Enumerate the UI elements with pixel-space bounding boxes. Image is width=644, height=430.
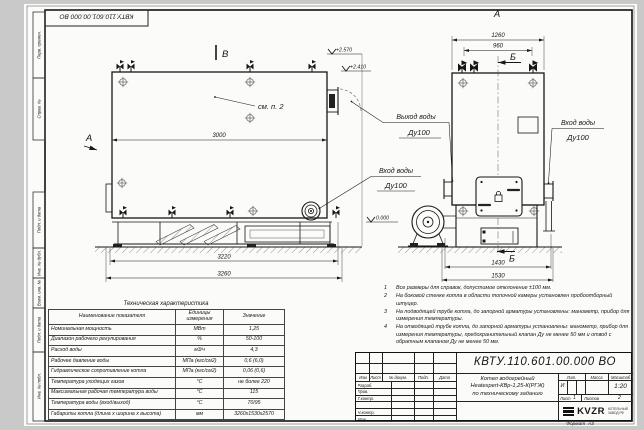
spec-table-title: Техническая характеристика: [48, 301, 284, 307]
kvzr-logo-subtext: КОТЕЛЬНЫЙ ЗАВОД РФ: [608, 408, 628, 416]
drawing-sheet: КВТУ.110.601.00.000 ВО Перв. примен. Спр…: [0, 0, 644, 430]
dim-3220: 3220: [217, 255, 231, 261]
spec-header-value: Значение: [224, 310, 285, 325]
list-label: Лист: [560, 396, 571, 401]
note-4: 4На отводящей трубе котла, до запорной а…: [384, 324, 634, 346]
row-prov: Пров.: [358, 389, 369, 394]
spec-row: Габариты котла (длина х ширина х высота)…: [49, 409, 285, 420]
section-b-bottom: Б: [509, 254, 515, 264]
outlet-pipe: [444, 179, 452, 199]
dim-1430: 1430: [491, 261, 505, 267]
front-view-label: А: [493, 9, 500, 20]
title-block: Изм Лист № докум. Подп. Дата Разраб. Про…: [355, 352, 632, 421]
connection-marks: [117, 77, 258, 216]
spec-row: Температура уходящих газов°Сне более 220: [49, 377, 285, 388]
dim-3260: 3260: [217, 272, 231, 278]
sidebar-vzam-inv: Взам. инв. №: [37, 280, 42, 306]
burner-door: [476, 177, 522, 216]
product-name: Котел водогрейный Heatexpert-КВр-1,25-К(…: [458, 376, 557, 398]
spec-header-name: Наименование показателя: [49, 310, 176, 325]
top-stamp: КВТУ.110.601.00.000 ВО: [45, 10, 148, 26]
front-view: А 1260 960 Б: [351, 9, 604, 282]
front-inlet-title: Вход воды: [561, 119, 596, 127]
sidebar-sprav-no: Справ. №: [37, 99, 42, 118]
format-value: А3: [588, 422, 594, 427]
spec-table: Техническая характеристика Наименование …: [48, 301, 284, 420]
dim-1530: 1530: [491, 274, 505, 280]
inlet-flange: [302, 202, 320, 220]
listov-label: Листов: [584, 396, 599, 401]
kvzr-logo-mark: [563, 407, 574, 416]
spec-row: Номинальная мощностьМВт1,25: [49, 325, 285, 336]
col-izm: Изм: [357, 375, 369, 380]
sidebar-labels: Перв. примен. Справ. № Подп. и дата Инв.…: [37, 31, 42, 399]
inlet-pipe: [543, 181, 555, 231]
dim-3000: 3000: [212, 133, 226, 139]
elev-2410: +2.410: [350, 65, 366, 71]
dim-1260: 1260: [491, 33, 505, 39]
inlet-title: Вход воды: [379, 167, 414, 175]
front-inlet-label: Вход воды Ду100: [548, 119, 604, 184]
spec-row: Диапазон рабочего регулирования%50-100: [49, 335, 285, 346]
col-list: Лист: [369, 375, 382, 380]
masshtab-label: Масштаб: [608, 375, 633, 380]
row-tkontr: Т.контр.: [358, 396, 375, 401]
spec-row: Температура воды (вход/выход)°С70/95: [49, 399, 285, 410]
sidebar-inv-dubl: Инв. № дубл.: [37, 250, 42, 276]
massa-label: Масса: [585, 375, 608, 380]
col-data: Дата: [433, 375, 456, 380]
format-label: Формат: [566, 422, 585, 427]
sidebar-perv-primen: Перв. примен.: [37, 31, 42, 59]
elev-2570: +2.570: [336, 48, 352, 54]
spec-header-unit: Единицы измерения: [176, 310, 224, 325]
lit-value: И: [558, 383, 567, 389]
section-b-top: Б: [510, 52, 516, 62]
spec-row: Максимальная рабочая температура воды°С1…: [49, 388, 285, 399]
kvzr-logo-text: KVZR: [577, 406, 605, 417]
dim-960: 960: [493, 44, 504, 50]
spec-header-row: Наименование показателя Единицы измерени…: [49, 310, 285, 325]
front-inlet-dn: Ду100: [566, 133, 589, 142]
format-strip: Формат А3: [540, 422, 620, 427]
base-frame: [112, 222, 336, 247]
section-b-label: В: [222, 49, 229, 60]
view-a-label: А: [85, 133, 92, 144]
row-nkontr: Н.контр.: [358, 410, 375, 415]
fan-blower: [408, 206, 456, 247]
col-podp: Подп.: [414, 375, 433, 380]
top-stamp-number: КВТУ.110.601.00.000 ВО: [60, 13, 134, 20]
note-3: 3На подводящей трубе котла, до запорной …: [384, 309, 634, 324]
company-logo: KVZR КОТЕЛЬНЫЙ ЗАВОД РФ: [558, 401, 633, 422]
row-razrab: Разраб.: [358, 383, 373, 388]
row-utv: Утв.: [358, 417, 367, 422]
side-view: 3000 В А см. п. 2 +2.570 +2.410: [84, 45, 421, 282]
spec-row: Расход водым3/ч4,3: [49, 346, 285, 357]
doc-number: КВТУ.110.601.00.000 ВО: [457, 356, 633, 368]
spec-row: Гидравлическое сопротивление котлаМПа (к…: [49, 367, 285, 378]
sidebar-podp-data-1: Подп. и дата: [37, 206, 42, 233]
notes-block: 1Все размеры для справок, допустимое отк…: [384, 285, 634, 347]
sidebar-podp-data-2: Подп. и дата: [37, 316, 42, 343]
valve-icons: [117, 60, 341, 218]
outlet-dn: Ду100: [407, 128, 430, 137]
sidebar-inv-podl: Инв. № подл.: [37, 373, 42, 399]
masshtab-value: 1:20: [608, 383, 633, 390]
inlet-dn: Ду100: [384, 181, 407, 190]
outlet-title: Выход воды: [396, 113, 436, 121]
side-inlet-label: Вход воды Ду100: [319, 167, 421, 209]
note-2: 2На боковой стенке котла в области топоч…: [384, 293, 634, 308]
see-note-label: см. п. 2: [258, 102, 284, 111]
lit-label: Лит.: [558, 375, 585, 380]
elev-0000: 0.000: [376, 216, 389, 222]
col-docum: № докум.: [382, 375, 414, 380]
spec-row: Рабочее давление водыМПа (кгс/см2)0,6 (6…: [49, 356, 285, 367]
note-1: 1Все размеры для справок, допустимое отк…: [384, 285, 634, 292]
